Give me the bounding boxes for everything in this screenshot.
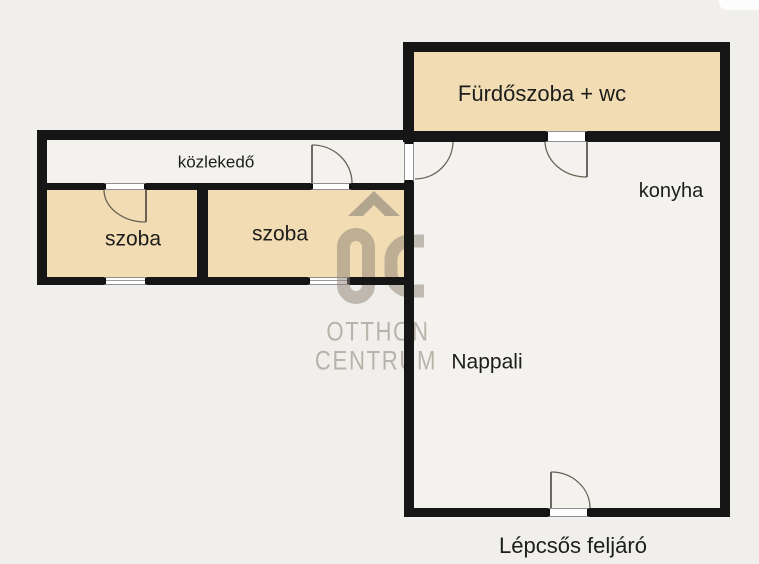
wall-wing-top — [37, 130, 405, 140]
room-label-stairs: Lépcsős feljáró — [499, 535, 647, 557]
wall-wing-left — [37, 130, 47, 285]
corner-notch — [719, 0, 759, 10]
window-room-right — [307, 277, 350, 285]
wall-wing-bottom-3 — [350, 277, 405, 285]
wall-bathroom-bottom-right — [588, 131, 720, 142]
door-threshold-bathroom — [545, 131, 588, 142]
wall-rooms-top-1 — [37, 183, 103, 190]
wall-right-outer — [720, 42, 730, 517]
wall-bathroom-left — [403, 42, 414, 142]
wall-bottom-right-seg — [590, 508, 720, 517]
wall-rooms-divider — [197, 183, 208, 285]
wall-rooms-top-3 — [352, 183, 405, 190]
room-label-room-right: szoba — [252, 224, 308, 245]
door-threshold-room-left — [103, 183, 147, 190]
room-label-room-left: szoba — [105, 229, 161, 250]
wall-living-left — [404, 183, 414, 517]
wall-bathroom-bottom-left — [403, 131, 545, 142]
room-label-hallway: közlekedő — [178, 154, 255, 171]
room-label-living: Nappali — [451, 352, 522, 373]
wall-bottom-left-seg — [404, 508, 547, 517]
door-threshold-hallway-living — [404, 141, 414, 183]
wall-rooms-top-2 — [147, 183, 310, 190]
window-room-left — [103, 277, 148, 285]
room-label-bathroom: Fürdőszoba + wc — [458, 83, 626, 105]
wall-bathroom-top — [403, 42, 730, 52]
floor-plan: OTTHON CENTRUM Fürdőszoba + wc konyha kö… — [0, 0, 759, 564]
wall-wing-bottom-1 — [37, 277, 103, 285]
room-label-kitchen: konyha — [639, 181, 704, 201]
wall-wing-bottom-2 — [148, 277, 307, 285]
door-threshold-room-right — [310, 183, 352, 190]
watermark-brand-line2: CENTRUM — [315, 348, 437, 375]
door-threshold-entry — [547, 508, 590, 517]
watermark-brand-line1: OTTHON — [326, 319, 429, 346]
